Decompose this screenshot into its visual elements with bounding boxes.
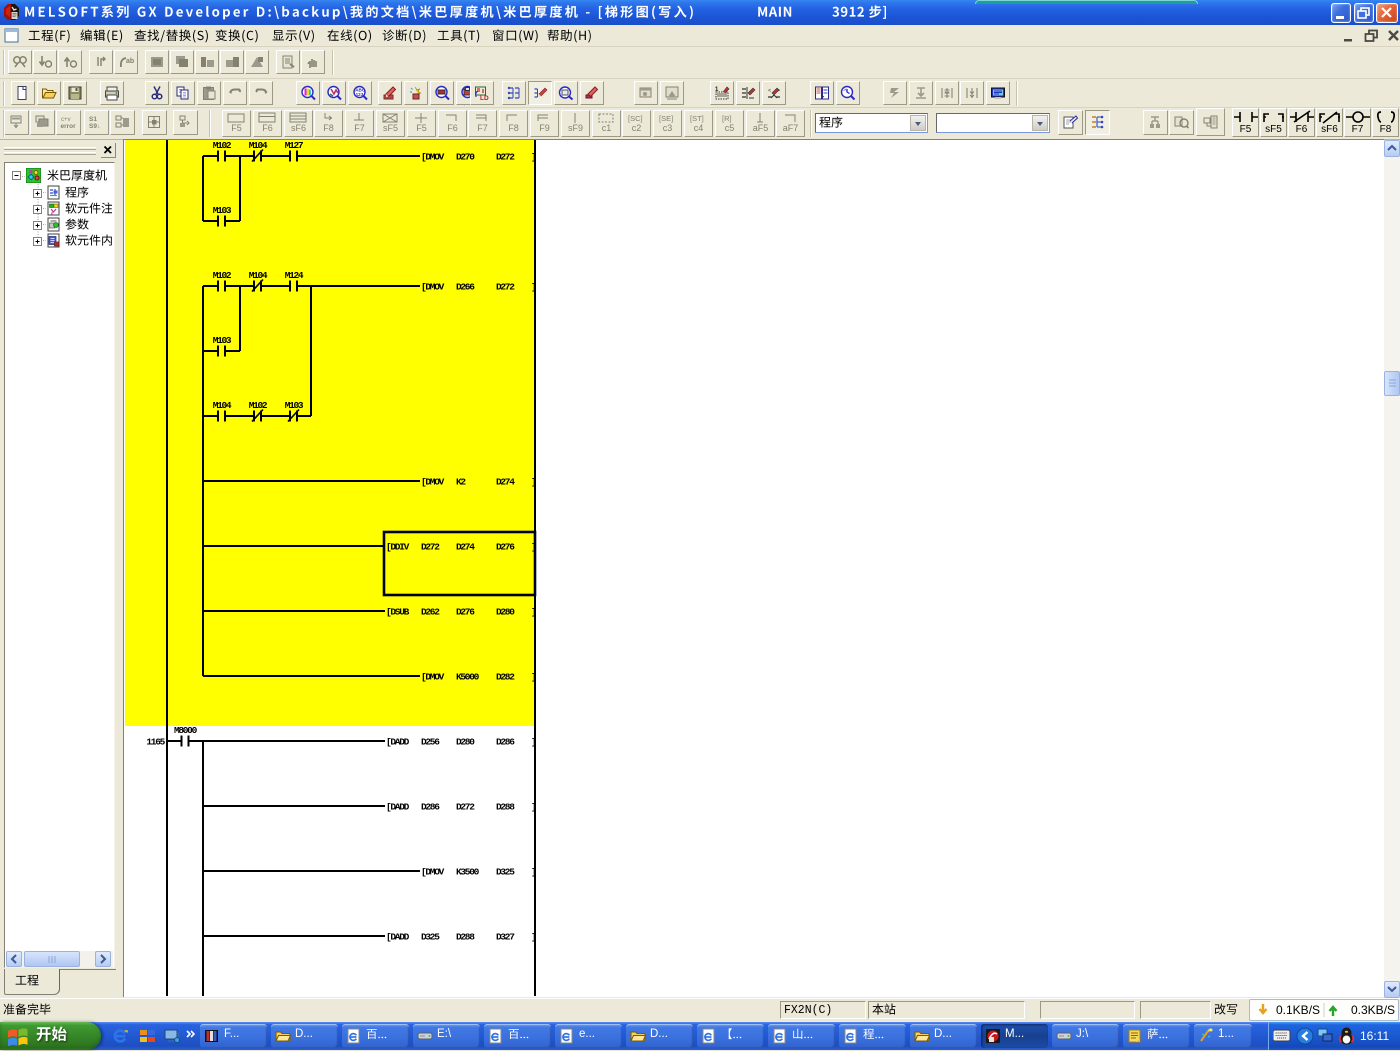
svg-text:error: error xyxy=(61,123,77,130)
svg-text:-K: -K xyxy=(843,87,847,92)
svg-text:M104: M104 xyxy=(249,270,268,281)
svg-text:S1: S1 xyxy=(89,116,97,123)
svg-text:LD: LD xyxy=(480,95,489,102)
svg-text:1165: 1165 xyxy=(146,737,165,748)
svg-text:M103: M103 xyxy=(213,205,232,216)
svg-text:M104: M104 xyxy=(213,400,232,411)
svg-text:M127: M127 xyxy=(285,140,304,151)
svg-text:ab: ab xyxy=(126,58,134,65)
svg-text:M102: M102 xyxy=(249,400,268,411)
svg-text:[SC]: [SC] xyxy=(628,114,643,123)
svg-text:[R]: [R] xyxy=(722,114,732,123)
svg-text:1: 1 xyxy=(715,87,719,93)
svg-text:[DMOVK3500D325]: [DMOVK3500D325] xyxy=(421,867,535,878)
svg-text:[DADDD325D288D327]: [DADDD325D288D327] xyxy=(386,932,535,943)
svg-text:M124: M124 xyxy=(285,270,304,281)
svg-text:S9↓: S9↓ xyxy=(89,123,100,130)
svg-text:M8000: M8000 xyxy=(174,725,198,736)
svg-text:M102: M102 xyxy=(213,270,232,281)
svg-text:M103: M103 xyxy=(285,400,304,411)
svg-text:M104: M104 xyxy=(249,140,268,151)
svg-text:<: < xyxy=(768,88,771,94)
svg-text:M102: M102 xyxy=(213,140,232,151)
svg-text:[DADDD286D272D288]: [DADDD286D272D288] xyxy=(386,802,535,813)
svg-text:[ST]: [ST] xyxy=(690,114,704,123)
svg-text:123: 123 xyxy=(355,92,363,97)
svg-text:>: > xyxy=(777,88,780,94)
svg-text:[SE]: [SE] xyxy=(659,114,673,123)
svg-text:[DADDD256D280D286]: [DADDD256D280D286] xyxy=(386,737,535,748)
svg-text:M103: M103 xyxy=(213,335,232,346)
